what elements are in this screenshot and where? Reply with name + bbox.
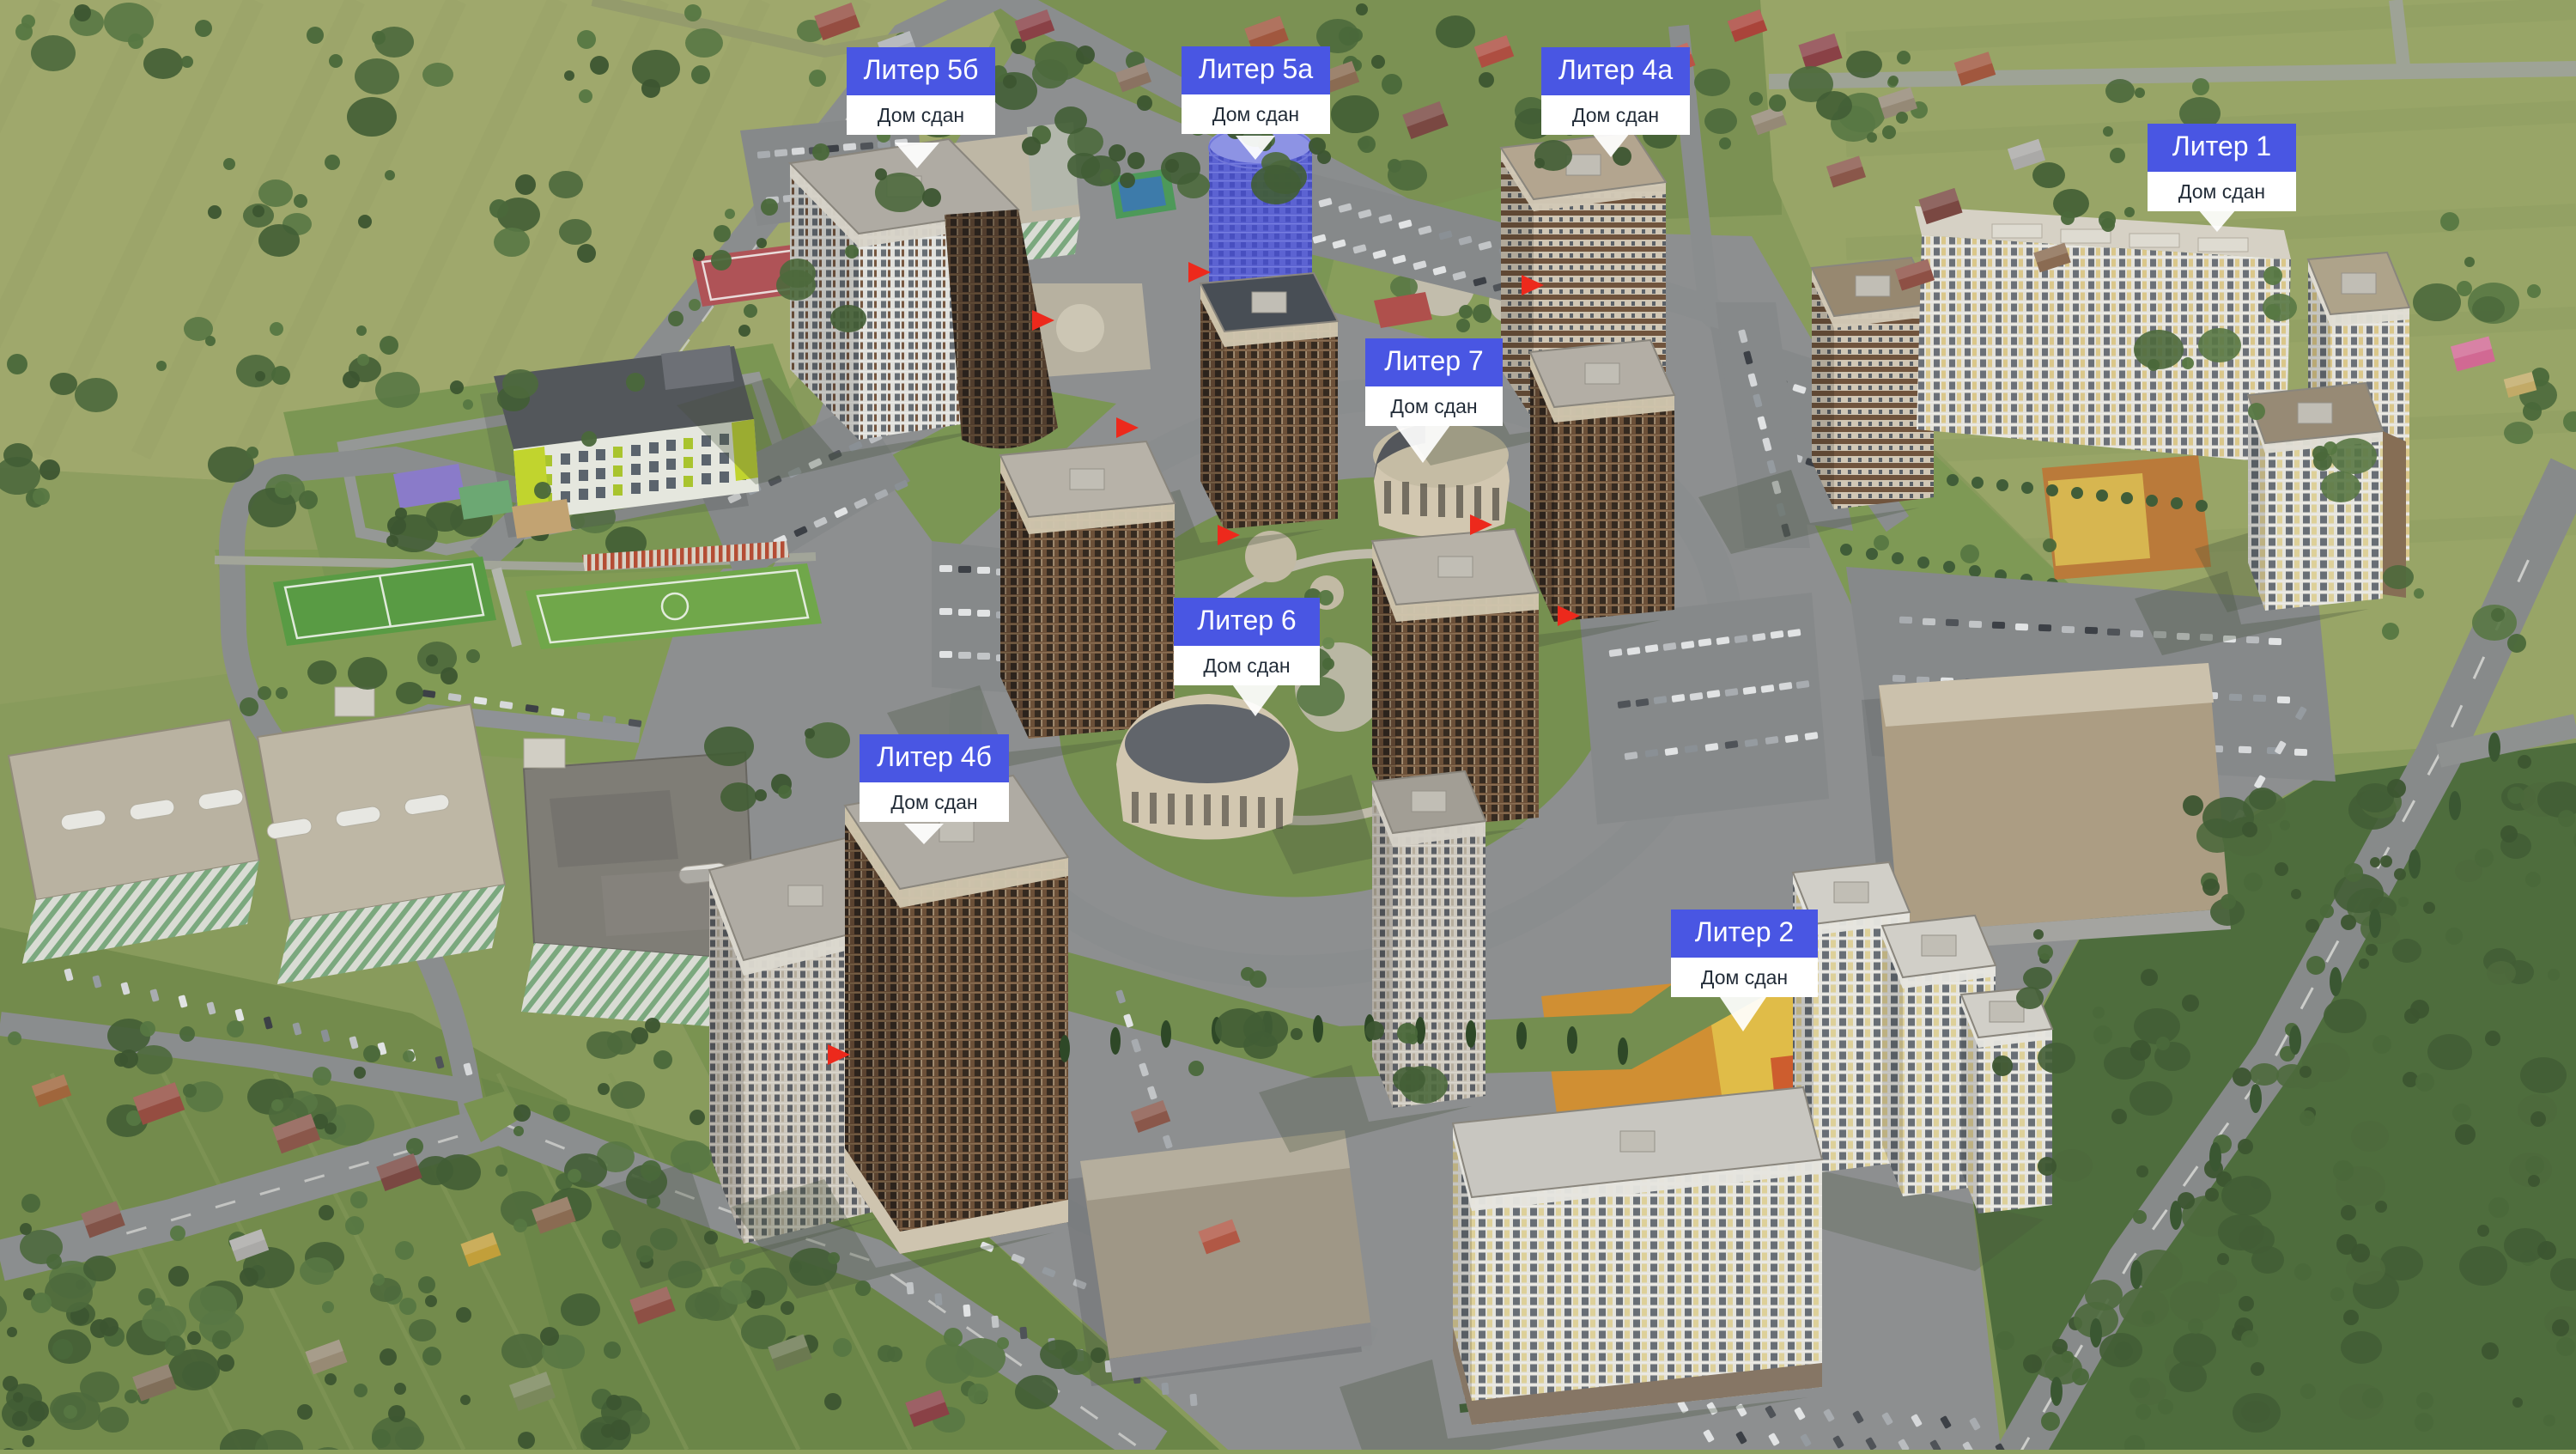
svg-text:Литер 7: Литер 7	[1384, 345, 1483, 376]
svg-text:Дом сдан: Дом сдан	[1701, 966, 1788, 989]
svg-text:Дом сдан: Дом сдан	[890, 791, 977, 813]
svg-text:Дом сдан: Дом сдан	[1390, 395, 1477, 417]
svg-text:Дом сдан: Дом сдан	[1572, 104, 1659, 126]
svg-text:Литер 6: Литер 6	[1197, 605, 1296, 636]
svg-text:Литер 4б: Литер 4б	[877, 741, 992, 772]
svg-text:Дом сдан: Дом сдан	[1203, 654, 1290, 677]
svg-text:Литер 5б: Литер 5б	[864, 54, 979, 85]
svg-text:Дом сдан: Дом сдан	[2178, 180, 2265, 203]
svg-text:Литер 4а: Литер 4а	[1558, 54, 1673, 85]
svg-text:Дом сдан: Дом сдан	[878, 104, 964, 126]
svg-text:Литер 5а: Литер 5а	[1199, 53, 1313, 84]
svg-text:Литер 1: Литер 1	[2172, 131, 2271, 161]
svg-text:Литер 2: Литер 2	[1695, 916, 1794, 947]
svg-text:Дом сдан: Дом сдан	[1212, 103, 1299, 125]
